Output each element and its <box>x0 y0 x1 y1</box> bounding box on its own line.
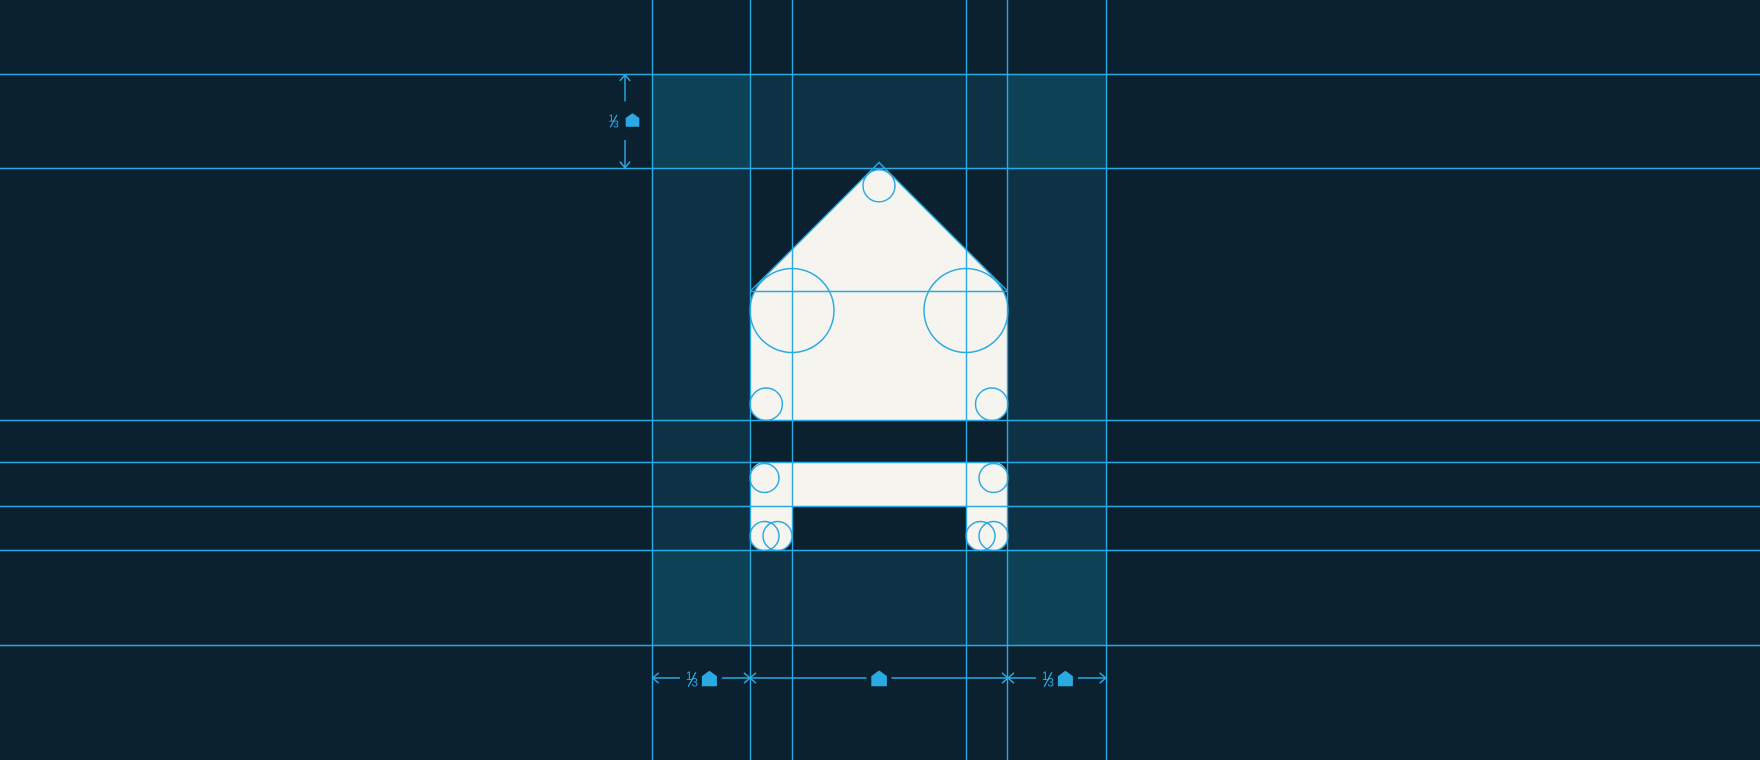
svg-text:3: 3 <box>1047 676 1054 690</box>
svg-text:3: 3 <box>613 119 619 130</box>
svg-text:3: 3 <box>691 676 698 690</box>
